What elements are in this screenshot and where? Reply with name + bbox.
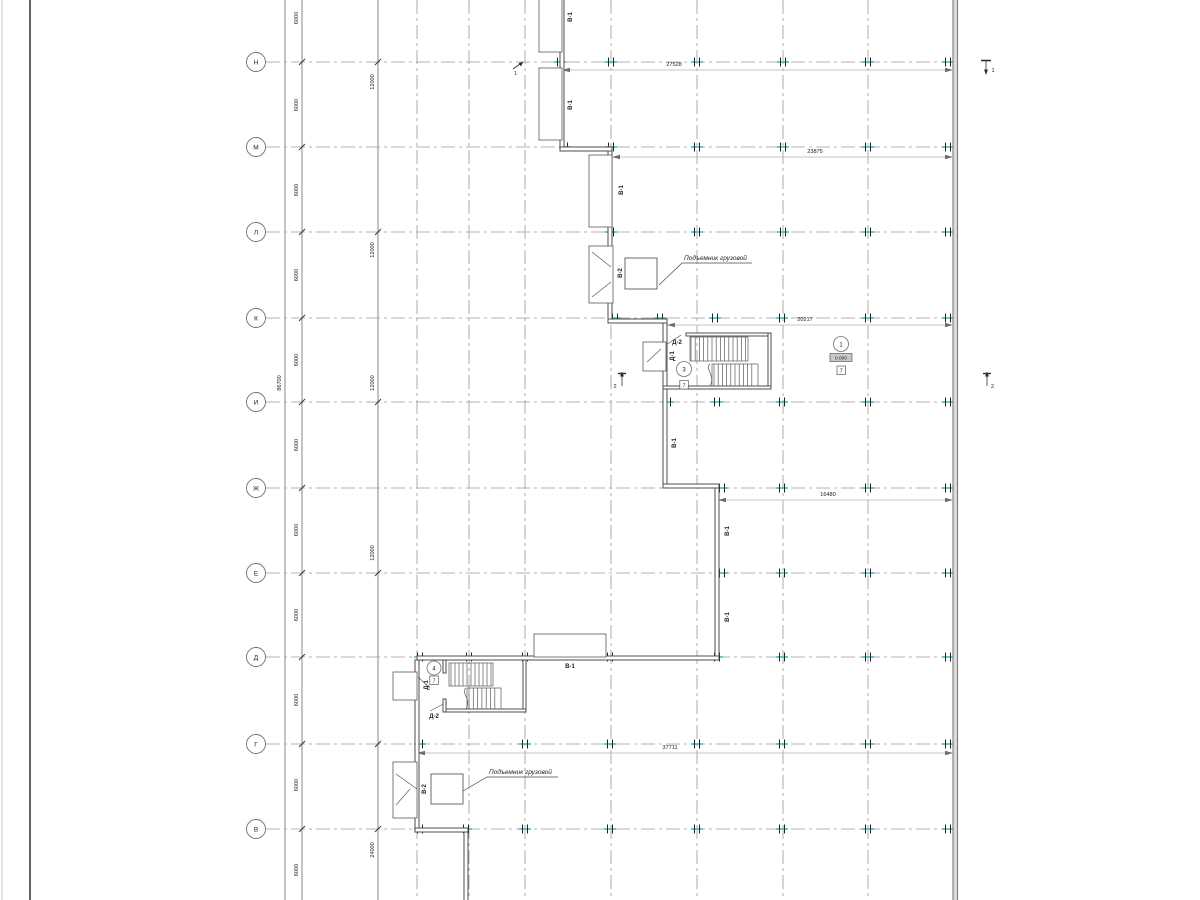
right-boundary-wall [953, 0, 958, 900]
dim-bay-6000: 6000 [294, 99, 300, 111]
door-swing-lines [396, 252, 681, 805]
cargo-lift-shaft-lower [431, 774, 463, 804]
row-axis-label: Л [254, 229, 258, 236]
dim-bay-6000: 6000 [294, 269, 300, 281]
cargo-lift-shaft-upper [625, 258, 657, 289]
dim-27528: 27528 [666, 62, 682, 68]
wall-mark-label: В-1 [725, 612, 731, 622]
dim-20217: 20217 [797, 317, 813, 323]
dim-24000: 24000 [370, 842, 376, 858]
finish-type: 7 [683, 383, 686, 389]
dim-12000: 12000 [370, 242, 376, 258]
dim-12000: 12000 [370, 545, 376, 561]
wall-mark-label: В-1 [619, 185, 625, 195]
wall-mark-label: Д-2 [429, 714, 439, 720]
finish-type: 7 [433, 679, 436, 685]
dim-37711: 37711 [662, 745, 677, 751]
wall-mark-label: В-1 [725, 526, 731, 536]
dim-bay-6000: 6000 [294, 779, 300, 791]
wall-mark-label: В-1 [568, 12, 574, 22]
row-axis-label: Е [254, 570, 259, 577]
dim-12000: 12000 [370, 375, 376, 391]
row-axis-label: Н [254, 59, 259, 66]
callout-room1: 1 0.000 7 [830, 337, 852, 375]
wall-mark-label: В-1 [672, 438, 678, 448]
row-axis-label: Ж [253, 485, 259, 492]
dim-bay-6000: 6000 [294, 864, 300, 876]
floor-plan-sheet: НМЛКИЖЕДГВ 27528 23875 20217 16480 37711 [0, 0, 1200, 900]
finish-type: 7 [840, 369, 843, 375]
dim-bay-6000: 6000 [294, 184, 300, 196]
gate-leaf-outlines [393, 0, 666, 818]
floor-plan-svg: НМЛКИЖЕДГВ 27528 23875 20217 16480 37711 [0, 0, 1200, 900]
leader-line-upper [659, 263, 752, 285]
cargo-lift-label-upper: Подъемник грузовой [684, 254, 747, 262]
dim-overall-86700: 86700 [277, 375, 283, 391]
callout-room3: 3 7 [677, 362, 692, 390]
grid-layer: НМЛКИЖЕДГВ [247, 0, 955, 900]
stair-break-line [708, 364, 711, 386]
cargo-lift-label-lower: Подъемник грузовой [489, 768, 552, 776]
dim-12000: 12000 [370, 74, 376, 90]
wall-mark-label: Д-2 [672, 340, 682, 346]
section-mark-1-left: 1 [513, 62, 523, 77]
wall-mark-label: Д-1 [424, 680, 430, 690]
dim-bay-6000: 6000 [294, 609, 300, 621]
section-mark-1-right: 1 [981, 61, 995, 76]
wall-mark-label: В-1 [568, 100, 574, 110]
dim-bay-6000: 6000 [294, 694, 300, 706]
horizontal-dimension-lines [417, 70, 953, 753]
section-number: 1 [992, 68, 995, 74]
dim-16480: 16480 [820, 492, 836, 498]
wall-mark-label: Д-1 [670, 351, 676, 361]
stairwell-lower [443, 660, 526, 712]
leader-line-lower [463, 777, 558, 791]
section-number: 2 [614, 384, 617, 390]
row-axis-label: И [254, 399, 259, 406]
section-number: 2 [991, 384, 994, 390]
section-mark-2-left: 2 [614, 372, 627, 391]
row-axis-label: В [254, 826, 258, 833]
dim-bay-6000: 6000 [294, 439, 300, 451]
dim-bay-6000: 6000 [294, 524, 300, 536]
dim-23875: 23875 [807, 149, 823, 155]
wall-mark-label: В-1 [565, 664, 575, 670]
wall-mark-label: В-2 [422, 784, 428, 794]
section-number: 1 [514, 71, 517, 77]
elevation-mark: 0.000 [835, 356, 847, 362]
dim-bay-6000: 6000 [294, 12, 300, 24]
row-axis-label: К [254, 315, 258, 322]
dimension-arrowheads [417, 68, 953, 755]
row-axis-label: Г [254, 741, 258, 748]
section-mark-2-right: 2 [983, 372, 994, 391]
wall-mark-label: В-2 [618, 268, 624, 278]
row-axis-label: Д [254, 654, 259, 661]
row-axis-label: М [253, 144, 258, 151]
building-walls [415, 0, 719, 900]
dim-bay-6000: 6000 [294, 354, 300, 366]
